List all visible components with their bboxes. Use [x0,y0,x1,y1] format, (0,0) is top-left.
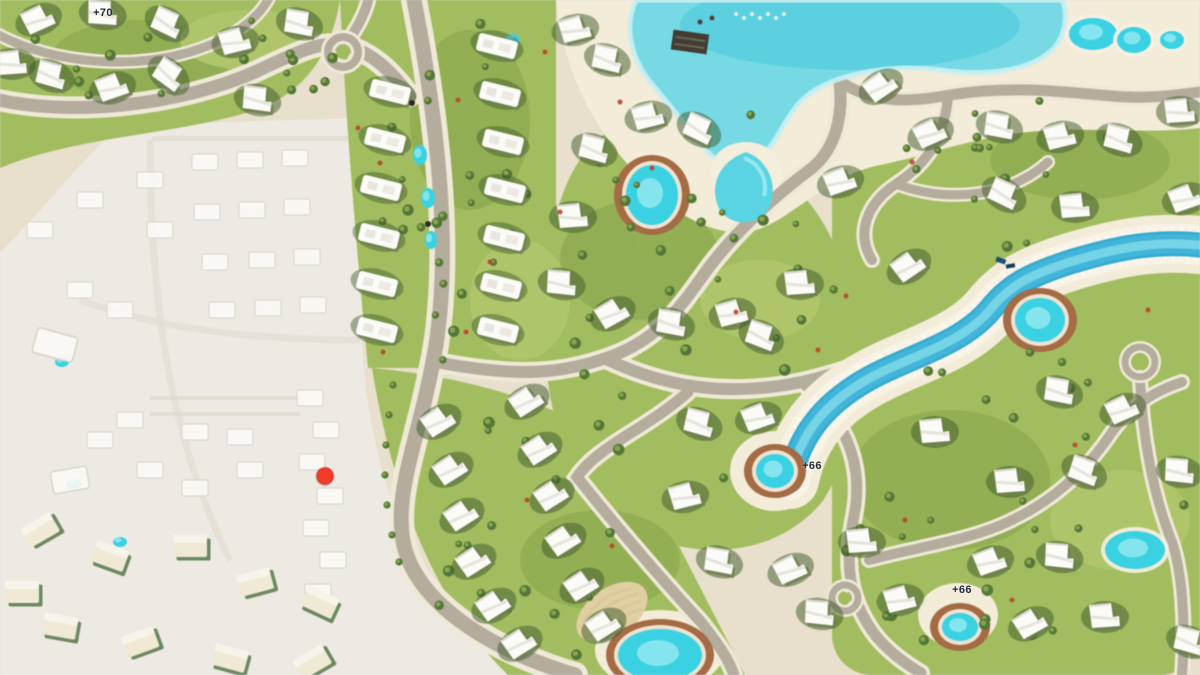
future-building [27,222,53,238]
tree [1042,171,1049,178]
tree [259,35,267,43]
tree [618,392,626,400]
tree [432,311,439,318]
tree [986,144,993,151]
tree [719,209,726,216]
tree [320,77,329,86]
tree [468,199,475,206]
tree [605,528,615,538]
villa [1081,601,1129,633]
tree [903,144,911,152]
tree [309,85,318,94]
tree [448,326,459,337]
pool-highlight [764,461,783,478]
tree [248,17,255,24]
pool-highlight [1124,32,1141,45]
tree [425,70,436,81]
tree [1026,348,1035,357]
tree [1002,241,1013,252]
villa [911,416,959,448]
future-building [67,282,93,298]
street-tree [382,441,389,448]
tree [923,366,933,376]
pool-highlight [423,191,430,201]
pool-highlight [637,178,663,208]
future-building [87,432,113,448]
future-building [77,192,103,208]
shrub [910,160,915,165]
tree [327,53,338,64]
tree [633,182,640,189]
pool-highlight [415,148,422,158]
tree [465,171,474,180]
tree [105,50,116,61]
tree [715,276,721,282]
tree [797,315,807,325]
tree [973,133,982,142]
tree [579,369,589,379]
tree [656,245,666,255]
pool-highlight [1164,34,1176,43]
tree [979,619,990,630]
tree [571,649,582,660]
tree [613,444,625,456]
pool-highlight [115,538,122,543]
street-tree [385,411,392,418]
tree [687,194,697,204]
pool-highlight [1118,539,1148,558]
future-building [147,222,173,238]
masterplan-map[interactable]: +70+66+66 [0,0,1200,675]
pool-highlight [1079,24,1103,40]
tree [1036,97,1044,105]
tree [1058,358,1066,366]
future-building [209,302,235,318]
future-building [303,520,329,536]
street-tree [389,381,396,388]
villa [838,526,886,558]
tree [594,420,605,431]
shrub [543,50,548,55]
future-building [194,204,220,220]
tree [620,196,631,207]
tree [758,215,769,226]
street-tree [383,501,390,508]
tree [719,473,728,482]
tree [1023,240,1030,247]
tree [578,250,587,259]
tree [912,165,920,173]
future-building [239,202,265,218]
future-building [117,412,143,428]
villa [776,268,824,300]
tree [1031,526,1038,533]
tree [627,223,635,231]
tree [455,541,462,548]
tree [1074,524,1082,532]
tree [74,76,84,86]
villa [986,466,1034,498]
tree [438,212,448,222]
tree [1009,413,1019,423]
tree [1179,500,1188,509]
shrub [456,98,461,103]
future-building [317,488,343,504]
tree [793,221,800,228]
pool-highlight [637,640,679,666]
shrub [525,498,530,503]
elevation-label: +66 [952,584,972,596]
tree [1019,497,1026,504]
future-building [255,300,281,316]
shrub [618,100,623,105]
future-building [282,150,308,166]
building [173,535,211,561]
tree [680,344,691,355]
masterplan-canvas [0,0,1200,675]
tree [830,285,838,293]
tree [665,286,675,296]
tree [982,584,994,596]
shrub [1073,443,1078,448]
tree [1082,433,1090,441]
tree [283,69,290,76]
tree [697,218,706,227]
shrub [816,348,821,353]
villa [549,201,597,233]
shrub [488,260,493,265]
shrub [1146,308,1151,313]
tree [143,33,152,42]
tree [612,177,619,184]
shrub [734,310,739,315]
future-building [182,480,208,496]
tree [746,111,755,120]
tree [457,289,467,299]
elevation-label: +66 [802,460,822,472]
tree [519,585,530,596]
street-tree [395,558,402,565]
shrub [464,330,469,335]
tree [483,417,495,429]
shrub [610,544,615,549]
tree [899,533,906,540]
shrub [903,518,908,523]
tree [1084,379,1092,387]
tree [1024,557,1035,568]
future-building [202,254,228,270]
road-speck [425,221,431,227]
shrub [1010,598,1015,603]
pool-highlight [1026,307,1051,329]
street-tree [388,531,395,538]
tree [434,601,443,610]
tree [487,521,496,530]
tree [729,234,738,243]
tree [549,609,559,619]
shrub [356,126,361,131]
road-speck [409,100,415,106]
tree [287,85,296,94]
tree [402,204,413,215]
future-building [107,302,133,318]
future-building [182,424,208,440]
location-marker[interactable] [317,468,334,485]
tree [439,356,446,363]
tree [475,19,485,29]
shrub [378,161,383,166]
tree [927,517,934,524]
tree [976,144,984,152]
future-building [237,152,263,168]
future-building [137,462,163,478]
villa [1051,191,1099,223]
tree [938,368,946,376]
tree [417,223,426,232]
future-building [320,552,346,568]
pool-highlight [949,618,967,632]
tree [73,65,80,72]
shrub [381,350,386,355]
future-building [137,172,163,188]
tree [884,492,894,502]
tree [482,63,489,70]
tree [439,280,447,288]
elevation-label: +70 [93,7,113,19]
shrub [650,166,655,171]
street-tree [381,471,388,478]
tree [779,364,791,376]
future-building [284,199,310,215]
tree [570,337,582,349]
tree [435,258,443,266]
tree [971,196,978,203]
shrub [558,210,563,215]
future-building [294,249,320,265]
tree [286,49,295,58]
shrub [844,294,849,299]
building [5,581,43,607]
future-building [313,422,339,438]
future-building [237,462,263,478]
tree [424,97,432,105]
future-building [297,390,323,406]
future-building [300,297,326,313]
future-building [249,252,275,268]
future-building [227,429,253,445]
pool-highlight [426,234,432,243]
tree [919,635,929,645]
tree [972,110,979,117]
future-building [192,154,218,170]
tree [982,395,991,404]
